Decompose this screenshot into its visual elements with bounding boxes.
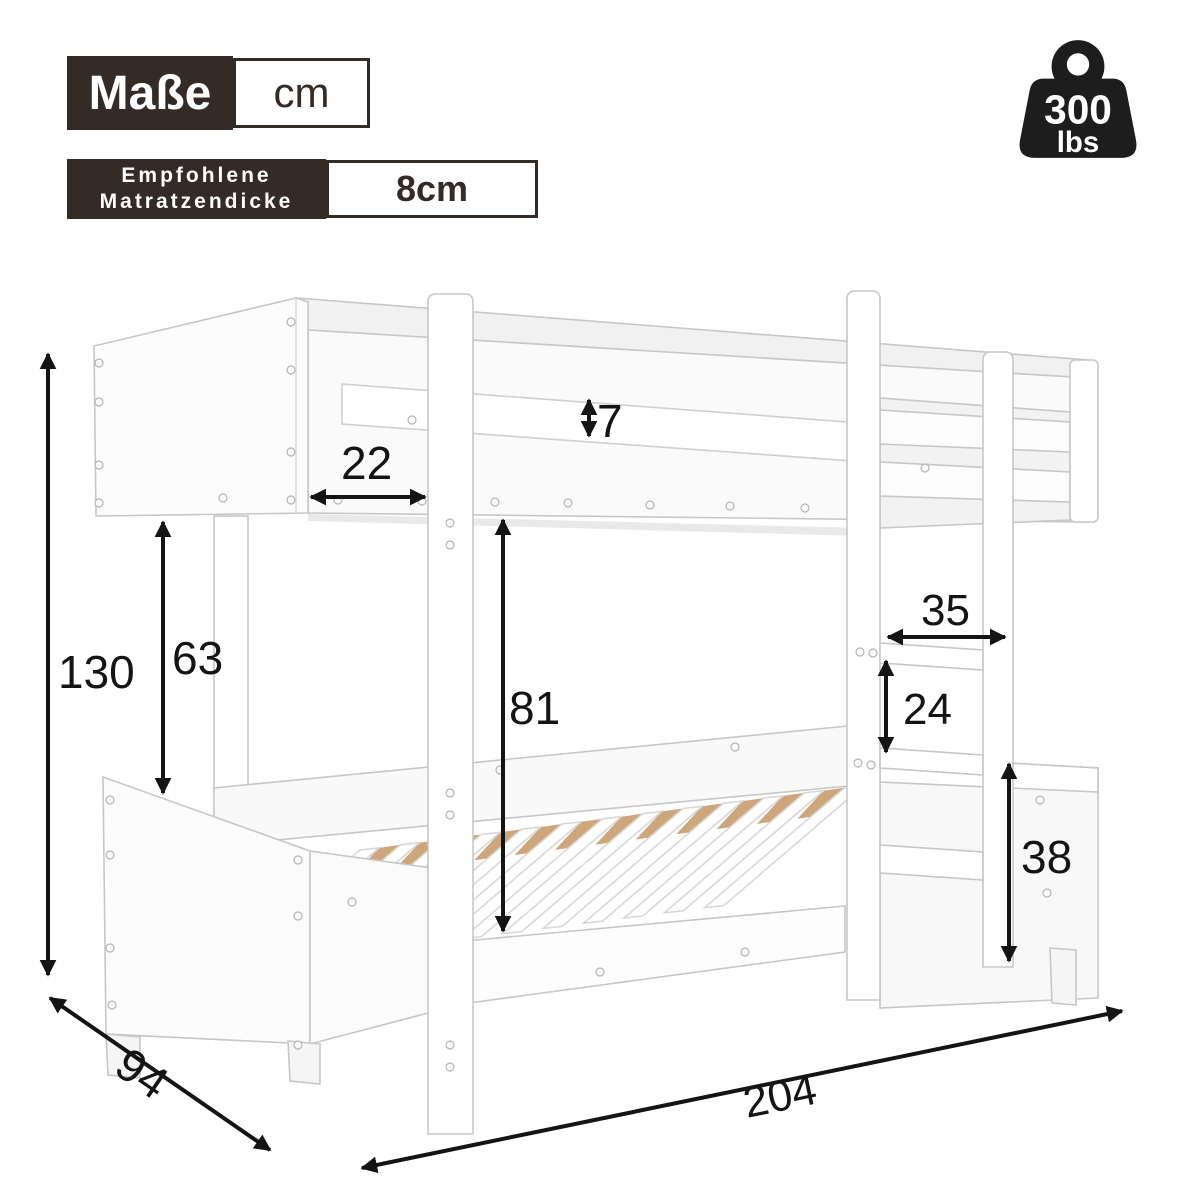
far-right-post-upper bbox=[1070, 360, 1098, 522]
front-left-post bbox=[428, 294, 473, 1134]
dim-rung-spacing: 24 bbox=[886, 661, 952, 752]
top-headboard-panel bbox=[94, 298, 308, 516]
dim-ladder-width-label: 35 bbox=[921, 586, 970, 635]
ladder-rung bbox=[880, 643, 983, 670]
dim-length: 204 bbox=[362, 1011, 1122, 1168]
dim-total-height-label: 130 bbox=[58, 646, 135, 698]
dim-lower-frame-height-label: 38 bbox=[1021, 831, 1072, 883]
leg bbox=[1050, 948, 1076, 1005]
bunk-bed-dimension-diagram: Maße cm Empfohlene Matratzendicke 8cm 30… bbox=[0, 0, 1200, 1200]
dim-headboard-inset-label: 22 bbox=[341, 437, 392, 489]
leg bbox=[288, 1041, 320, 1084]
dim-gap-label: 63 bbox=[172, 632, 223, 684]
dim-rail-thickness-label: 7 bbox=[597, 395, 623, 447]
dim-clearance-label: 81 bbox=[509, 682, 560, 734]
bed-illustration: 130 63 22 7 81 35 bbox=[0, 0, 1200, 1200]
dim-length-label: 204 bbox=[739, 1065, 821, 1128]
ladder-rung bbox=[880, 845, 983, 880]
dim-rung-spacing-label: 24 bbox=[903, 685, 952, 734]
ladder-left-rail bbox=[847, 291, 880, 1000]
bottom-left-guard bbox=[310, 851, 432, 1044]
